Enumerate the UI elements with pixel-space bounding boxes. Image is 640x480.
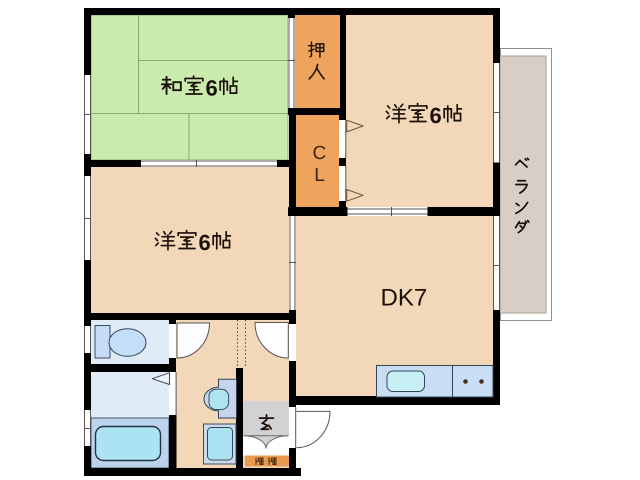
svg-text:6: 6	[430, 103, 442, 128]
svg-text:C: C	[313, 143, 327, 164]
svg-text:6: 6	[206, 76, 218, 101]
svg-text:6: 6	[199, 230, 211, 255]
svg-text:DK7: DK7	[381, 285, 428, 312]
svg-text:L: L	[314, 165, 325, 186]
